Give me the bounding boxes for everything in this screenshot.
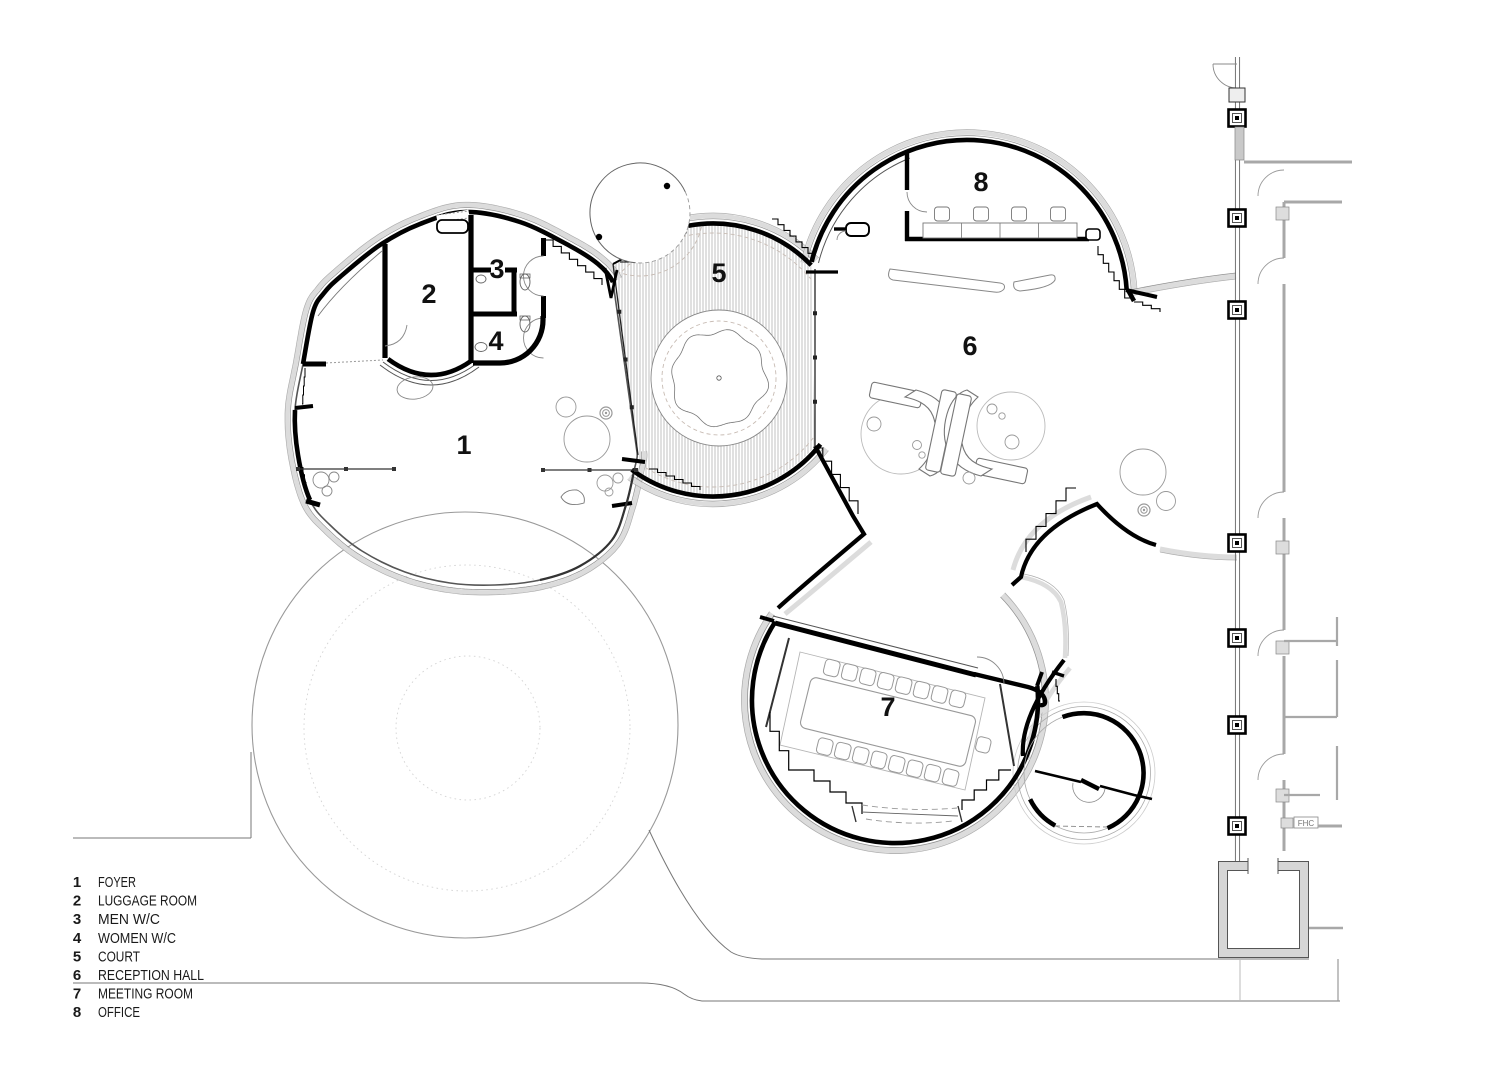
- svg-text:OFFICE: OFFICE: [98, 1004, 140, 1021]
- svg-text:8: 8: [973, 167, 988, 197]
- svg-text:FHC: FHC: [1298, 819, 1315, 828]
- svg-text:COURT: COURT: [98, 948, 140, 965]
- svg-text:1: 1: [73, 874, 81, 891]
- svg-text:6: 6: [962, 331, 977, 361]
- svg-text:3: 3: [73, 911, 81, 928]
- svg-text:RECEPTION HALL: RECEPTION HALL: [98, 967, 204, 984]
- svg-text:MEETING ROOM: MEETING ROOM: [98, 986, 193, 1003]
- svg-text:2: 2: [421, 279, 436, 309]
- svg-text:LUGGAGE ROOM: LUGGAGE ROOM: [98, 893, 197, 910]
- svg-text:7: 7: [880, 692, 895, 722]
- svg-text:FOYER: FOYER: [98, 874, 136, 891]
- svg-text:4: 4: [73, 930, 82, 947]
- svg-text:4: 4: [488, 326, 503, 356]
- svg-text:MEN W/C: MEN W/C: [98, 911, 160, 928]
- svg-text:3: 3: [489, 254, 504, 284]
- svg-text:1: 1: [456, 430, 471, 460]
- svg-text:5: 5: [73, 948, 81, 965]
- svg-text:5: 5: [711, 258, 726, 288]
- svg-text:WOMEN W/C: WOMEN W/C: [98, 930, 176, 947]
- svg-text:2: 2: [73, 893, 81, 910]
- svg-text:7: 7: [73, 986, 81, 1003]
- svg-text:8: 8: [73, 1004, 81, 1021]
- svg-text:6: 6: [73, 967, 81, 984]
